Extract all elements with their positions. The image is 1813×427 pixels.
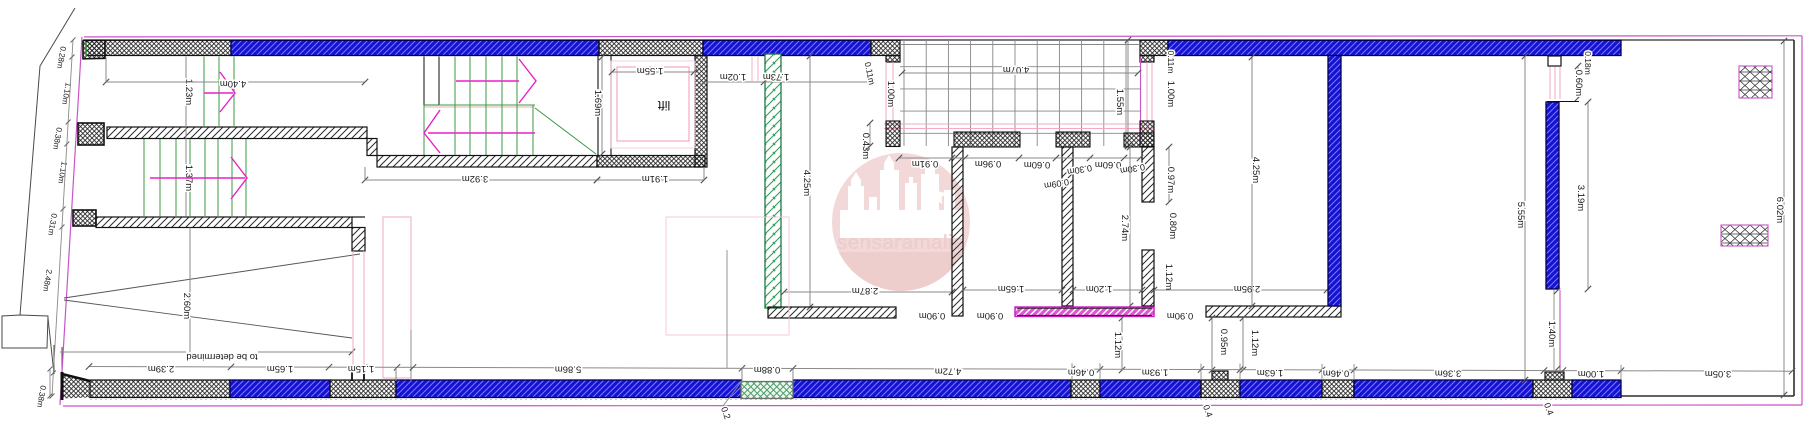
svg-text:1.12m: 1.12m	[1112, 332, 1123, 358]
svg-text:1.73m: 1.73m	[763, 71, 789, 82]
svg-text:lift: lift	[657, 98, 670, 112]
svg-text:1.65m: 1.65m	[267, 363, 293, 374]
svg-text:0.96m: 0.96m	[975, 158, 1001, 169]
svg-text:1.55m: 1.55m	[637, 65, 663, 76]
svg-text:0.95m: 0.95m	[1218, 329, 1229, 355]
svg-text:0.11m: 0.11m	[1166, 51, 1176, 74]
svg-text:0.88m: 0.88m	[754, 364, 780, 375]
svg-text:0.60m: 0.60m	[1024, 159, 1050, 170]
svg-text:1.00m: 1.00m	[885, 81, 896, 107]
svg-text:0.90m: 0.90m	[1167, 310, 1193, 321]
svg-text:1.12m: 1.12m	[1249, 330, 1260, 356]
svg-text:1.69m: 1.69m	[592, 90, 603, 116]
svg-text:0.46m: 0.46m	[1323, 368, 1349, 379]
svg-text:0.90m: 0.90m	[919, 310, 945, 321]
svg-text:2.39m: 2.39m	[148, 363, 174, 374]
svg-text:0.97m: 0.97m	[1165, 167, 1176, 193]
svg-text:1.15m: 1.15m	[348, 363, 374, 374]
svg-text:4.40m: 4.40m	[220, 78, 246, 89]
svg-text:1.23m: 1.23m	[183, 79, 194, 105]
svg-text:1.00m: 1.00m	[1578, 368, 1604, 379]
svg-text:4.25m: 4.25m	[801, 170, 812, 196]
svg-text:6.02m: 6.02m	[1774, 197, 1785, 223]
svg-text:1.91m: 1.91m	[642, 173, 668, 184]
svg-text:1.12m: 1.12m	[1163, 264, 1174, 290]
svg-text:1.93m: 1.93m	[1142, 367, 1168, 378]
svg-text:3.05m: 3.05m	[1705, 368, 1731, 379]
svg-text:0.60m: 0.60m	[1573, 70, 1584, 96]
svg-text:0.80m: 0.80m	[1167, 213, 1178, 239]
svg-text:to be determined: to be determined	[186, 351, 257, 362]
svg-text:0.91m: 0.91m	[912, 158, 938, 169]
svg-text:2.60m: 2.60m	[181, 293, 192, 319]
svg-text:2.87m: 2.87m	[852, 285, 878, 296]
svg-text:1.00m: 1.00m	[1165, 81, 1176, 107]
svg-text:5.86m: 5.86m	[555, 364, 581, 375]
svg-text:1.40m: 1.40m	[1546, 321, 1557, 347]
svg-text:2.95m: 2.95m	[1234, 283, 1260, 294]
svg-text:3.36m: 3.36m	[1435, 368, 1461, 379]
svg-text:1.63m: 1.63m	[1257, 367, 1283, 378]
svg-text:1.55m: 1.55m	[1114, 89, 1125, 115]
svg-text:0.46m: 0.46m	[1068, 367, 1094, 378]
svg-text:sensaramalia: sensaramalia	[837, 231, 965, 254]
svg-text:3.92m: 3.92m	[462, 173, 488, 184]
svg-text:1.20m: 1.20m	[1086, 283, 1112, 294]
svg-text:2.74m: 2.74m	[1119, 215, 1130, 241]
svg-text:1.02m: 1.02m	[720, 71, 746, 82]
svg-text:4.72m: 4.72m	[935, 366, 961, 377]
svg-text:0.90m: 0.90m	[977, 310, 1003, 321]
svg-text:4.25m: 4.25m	[1250, 157, 1261, 183]
svg-text:0.60m: 0.60m	[1095, 159, 1121, 170]
svg-text:1.65m: 1.65m	[998, 283, 1024, 294]
svg-text:5.55m: 5.55m	[1515, 202, 1526, 228]
svg-text:3.19m: 3.19m	[1575, 185, 1586, 211]
